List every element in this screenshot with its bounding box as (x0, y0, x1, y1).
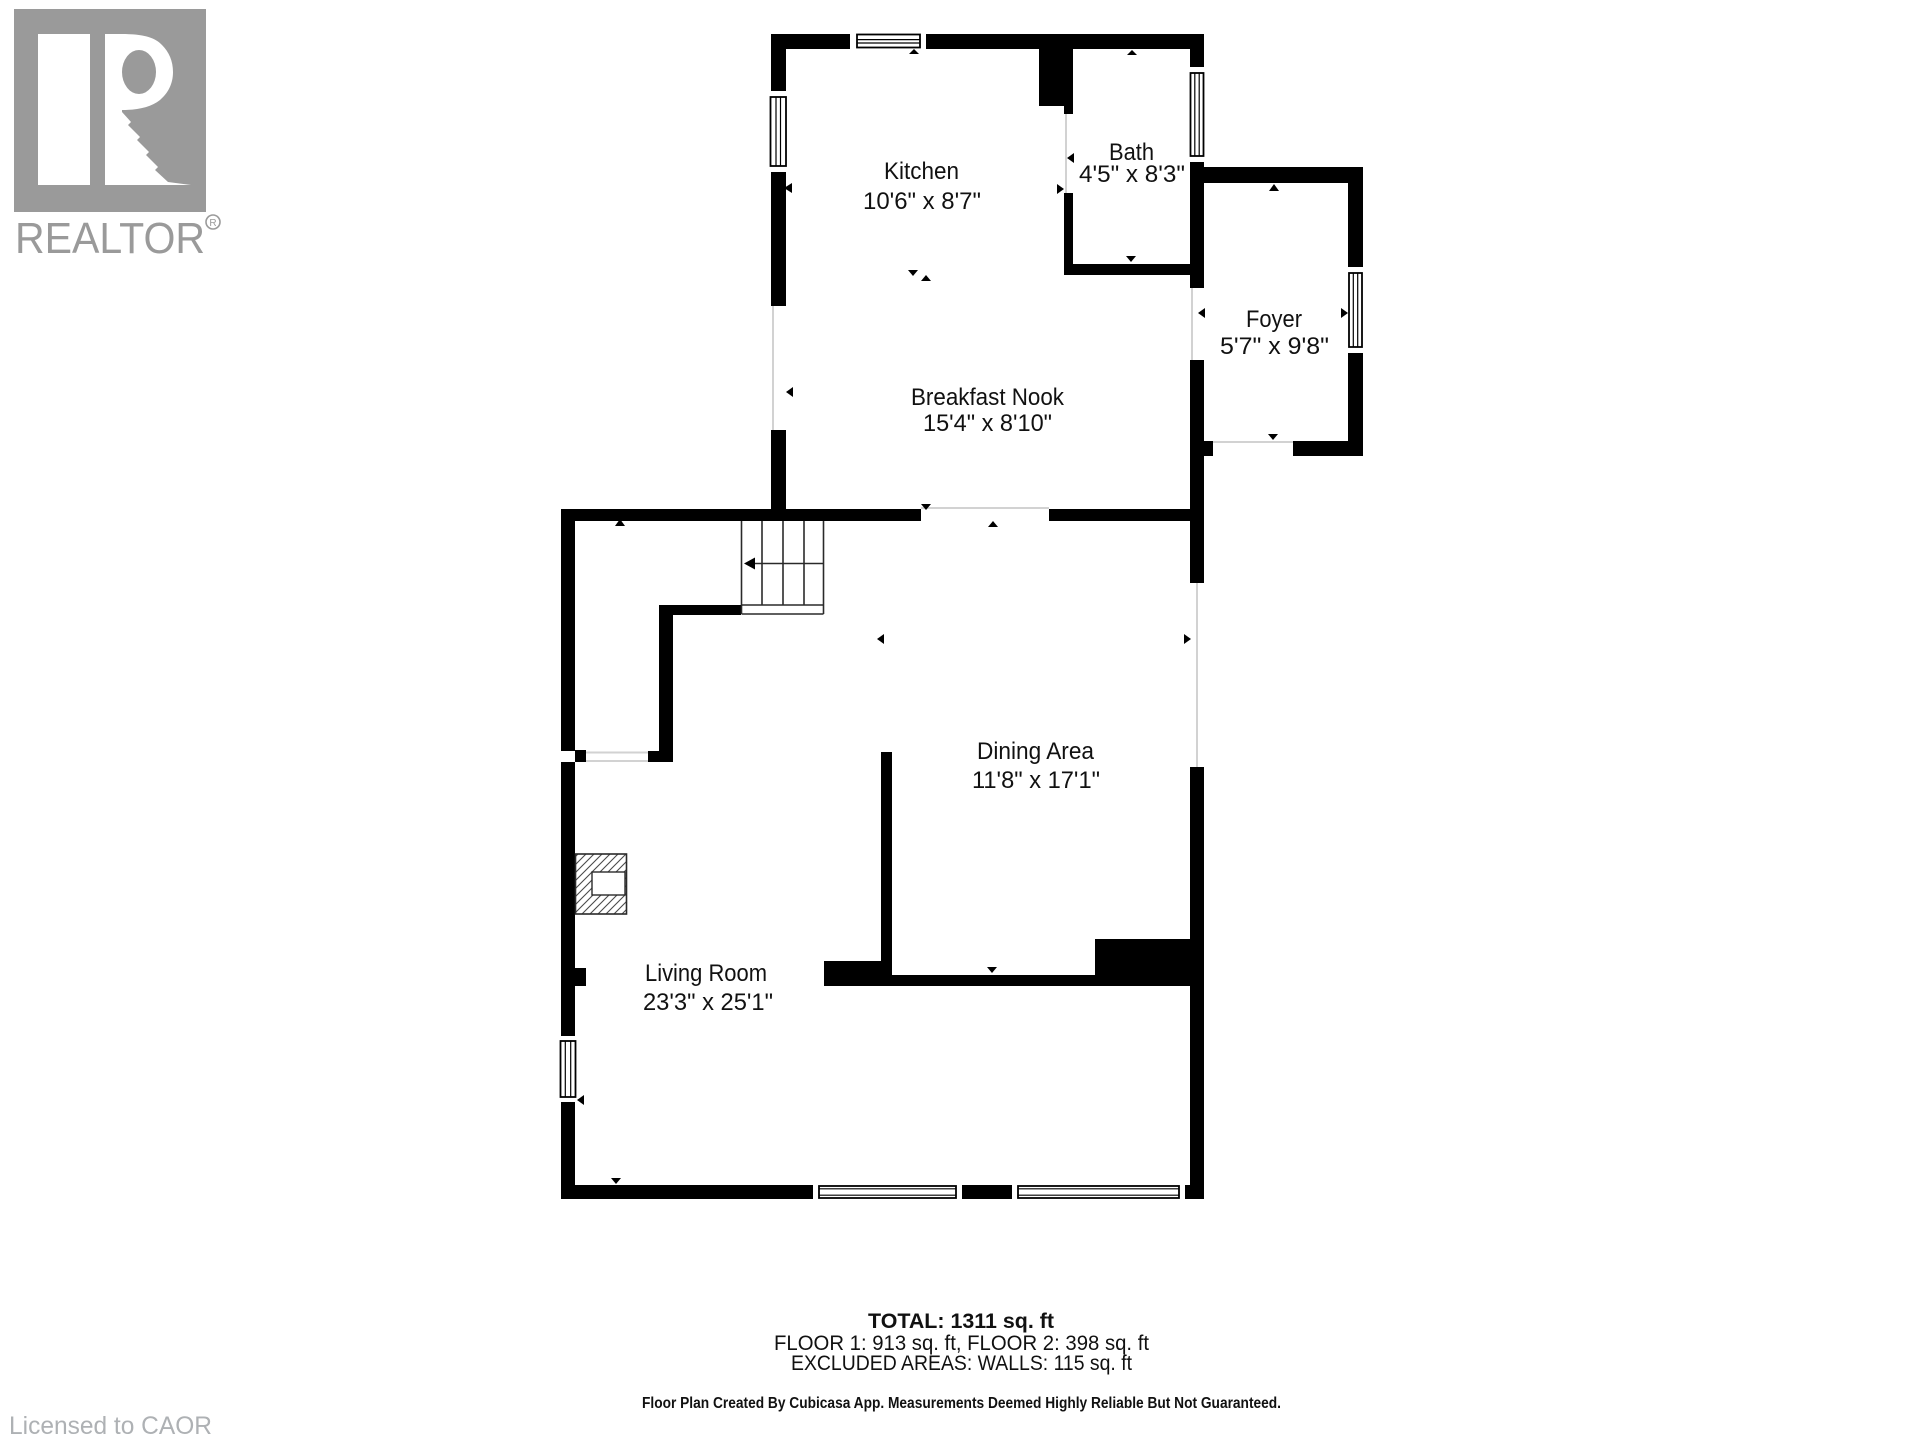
svg-text:4'5" x 8'3": 4'5" x 8'3" (1079, 161, 1185, 188)
svg-text:Breakfast Nook: Breakfast Nook (911, 384, 1065, 411)
svg-text:R: R (209, 218, 216, 229)
svg-text:Dining Area: Dining Area (977, 738, 1095, 765)
svg-text:15'4" x 8'10": 15'4" x 8'10" (923, 410, 1052, 437)
svg-text:Floor Plan Created By Cubicasa: Floor Plan Created By Cubicasa App. Meas… (642, 1395, 1281, 1412)
svg-text:TOTAL: 1311 sq. ft: TOTAL: 1311 sq. ft (868, 1310, 1054, 1333)
svg-text:Living Room: Living Room (645, 960, 767, 987)
svg-text:REALTOR: REALTOR (15, 214, 205, 263)
svg-text:23'3" x 25'1": 23'3" x 25'1" (643, 989, 773, 1016)
svg-text:10'6" x 8'7": 10'6" x 8'7" (863, 188, 981, 215)
svg-text:11'8" x 17'1": 11'8" x 17'1" (972, 767, 1100, 794)
svg-text:Foyer: Foyer (1246, 306, 1302, 333)
svg-text:EXCLUDED AREAS: WALLS: 115 sq.: EXCLUDED AREAS: WALLS: 115 sq. ft (791, 1352, 1132, 1375)
svg-text:Kitchen: Kitchen (884, 158, 959, 185)
svg-text:Licensed to CAOR: Licensed to CAOR (9, 1412, 212, 1440)
svg-text:5'7" x 9'8": 5'7" x 9'8" (1220, 333, 1329, 360)
